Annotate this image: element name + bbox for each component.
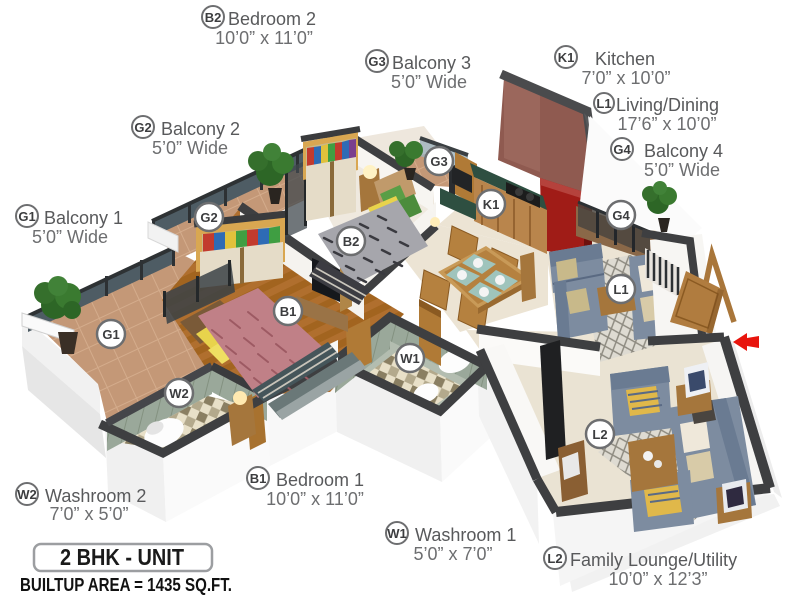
svg-text:G2: G2	[134, 120, 151, 135]
svg-text:G4: G4	[612, 208, 630, 223]
svg-text:Washroom 1: Washroom 1	[415, 525, 516, 545]
svg-text:Family Lounge/Utility: Family Lounge/Utility	[570, 550, 737, 570]
svg-text:W2: W2	[169, 386, 189, 401]
svg-text:B1: B1	[250, 471, 267, 486]
svg-text:G4: G4	[613, 142, 631, 157]
svg-text:10’0” x 12’3”: 10’0” x 12’3”	[608, 569, 707, 589]
svg-text:Bedroom 1: Bedroom 1	[276, 470, 364, 490]
svg-text:K1: K1	[483, 197, 500, 212]
svg-text:10’0” x 11’0”: 10’0” x 11’0”	[266, 489, 364, 509]
svg-text:Washroom 2: Washroom 2	[45, 486, 146, 506]
svg-text:W1: W1	[400, 351, 420, 366]
svg-text:B2: B2	[343, 234, 360, 249]
svg-text:G2: G2	[200, 210, 217, 225]
svg-text:17’6” x 10’0”: 17’6” x 10’0”	[617, 114, 716, 134]
svg-text:2 BHK - UNIT: 2 BHK - UNIT	[60, 544, 184, 570]
svg-text:7’0” x 10’0”: 7’0” x 10’0”	[581, 68, 670, 88]
svg-text:K1: K1	[558, 50, 575, 65]
svg-text:G1: G1	[18, 209, 35, 224]
svg-text:BUILTUP AREA = 1435 SQ.FT.: BUILTUP AREA = 1435 SQ.FT.	[20, 575, 232, 595]
svg-text:L1: L1	[613, 282, 628, 297]
svg-text:Bedroom 2: Bedroom 2	[228, 9, 316, 29]
svg-text:Balcony 1: Balcony 1	[44, 208, 123, 228]
svg-text:G3: G3	[430, 154, 447, 169]
svg-text:Balcony 4: Balcony 4	[644, 141, 723, 161]
svg-text:L2: L2	[547, 551, 562, 566]
svg-text:B1: B1	[280, 304, 297, 319]
svg-text:5’0” Wide: 5’0” Wide	[32, 227, 108, 247]
svg-text:Balcony 3: Balcony 3	[392, 53, 471, 73]
svg-text:G1: G1	[102, 327, 119, 342]
svg-text:Kitchen: Kitchen	[595, 49, 655, 69]
svg-text:7’0” x 5’0”: 7’0” x 5’0”	[49, 504, 128, 524]
svg-text:W2: W2	[17, 487, 37, 502]
svg-text:5’0” Wide: 5’0” Wide	[152, 138, 228, 158]
svg-text:Living/Dining: Living/Dining	[616, 95, 719, 115]
svg-text:Balcony 2: Balcony 2	[161, 119, 240, 139]
svg-text:L2: L2	[592, 427, 607, 442]
svg-text:W1: W1	[387, 526, 407, 541]
svg-text:5’0” Wide: 5’0” Wide	[644, 160, 720, 180]
svg-text:G3: G3	[368, 54, 385, 69]
svg-text:L1: L1	[596, 96, 611, 111]
svg-text:5’0” Wide: 5’0” Wide	[391, 72, 467, 92]
svg-text:5’0” x 7’0”: 5’0” x 7’0”	[413, 544, 492, 564]
svg-text:B2: B2	[205, 10, 222, 25]
svg-text:10’0” x 11’0”: 10’0” x 11’0”	[215, 28, 313, 48]
